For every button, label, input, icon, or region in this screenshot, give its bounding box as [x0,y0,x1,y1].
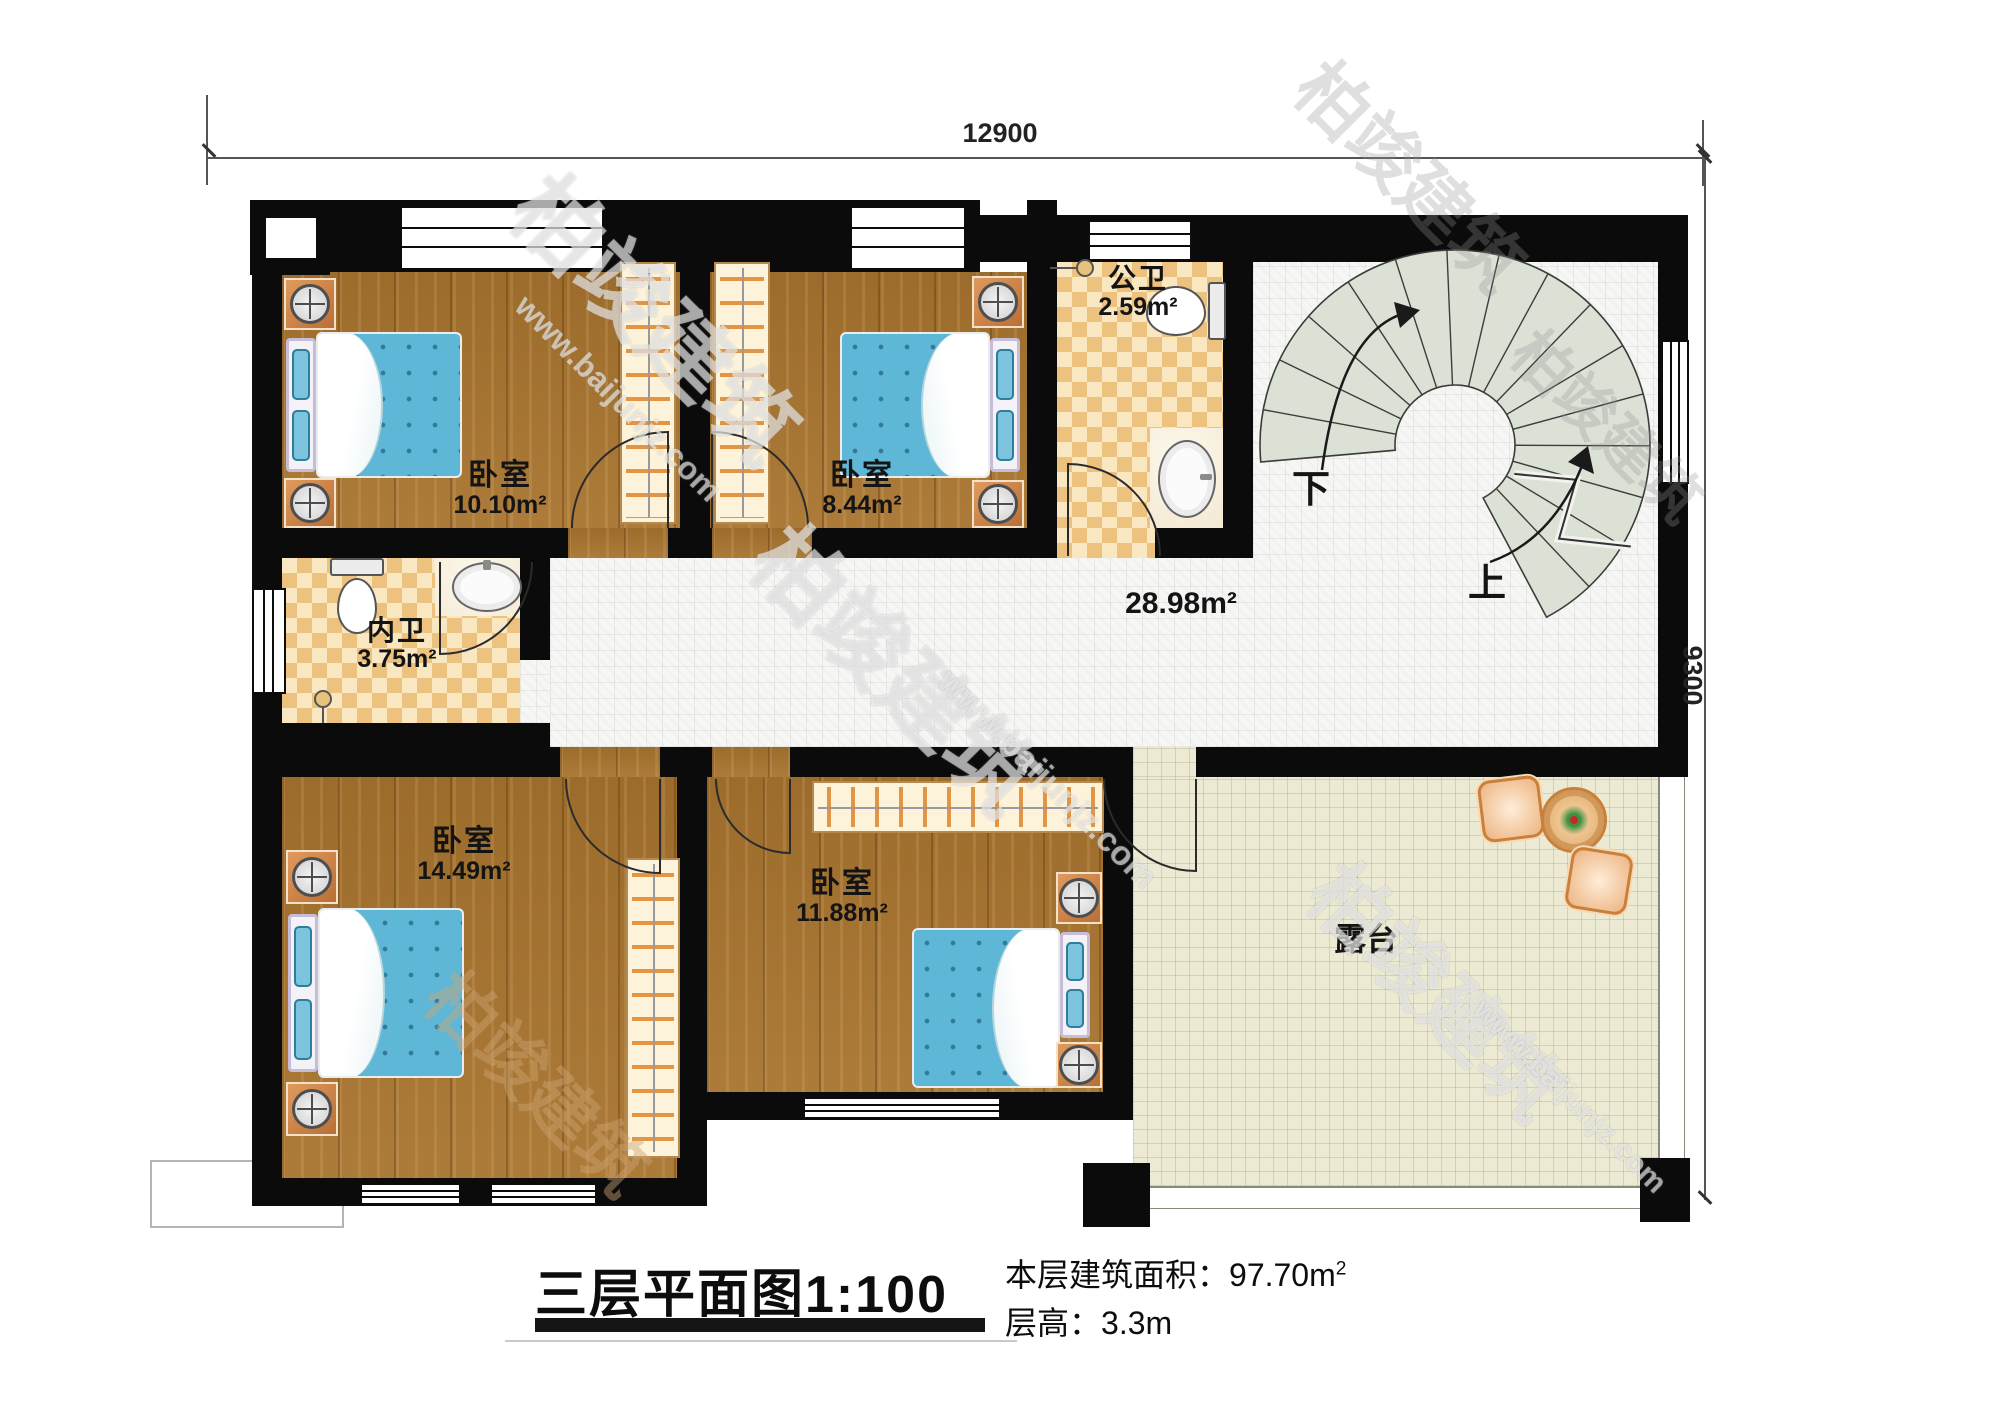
title-underline-thin [505,1340,1017,1342]
lamp-icon [292,857,332,897]
nightstand [286,850,338,904]
hanger-rail [626,268,670,518]
title-text: 三层平面图 [535,1266,805,1324]
lamp-icon [1059,1045,1099,1085]
wall-bedroom2-right [1027,200,1057,558]
pillow [996,349,1015,400]
floor-area-label: 本层建筑面积： [1005,1257,1229,1293]
nightstand [1056,872,1102,924]
wall-public-bath-bottom [1155,528,1253,558]
terrace-railing-bottom [1133,1186,1660,1188]
bed-mattress [316,332,462,478]
room-label-terrace: 露台 [1334,914,1398,960]
window-public-bath-top [1088,220,1192,261]
wardrobe [714,262,770,524]
extension-line-top-left [206,95,208,185]
room-name: 卧室 [430,460,570,492]
window-stair-hall-right [1661,340,1689,484]
nightstand [1056,1042,1102,1088]
terrace-railing-right-outer [1684,777,1685,1208]
bed-mattress [912,928,1060,1088]
lamp-icon [1059,878,1099,918]
window-inner-bath-left [252,588,286,694]
inner-bath-door-gap [520,660,550,723]
nightstand [286,1082,338,1136]
pillar-terrace-left [1083,1163,1150,1227]
floor-height-label: 层高： [1005,1305,1101,1341]
faucet-icon [1200,474,1212,480]
wall-public-bath-right [1223,215,1253,558]
nightstand [284,278,336,330]
bed-sheet [921,332,990,478]
lamp-icon [290,483,330,523]
room-area: 14.49m² [394,858,534,885]
window-bedroom3-bottom-a [360,1183,461,1205]
drawing-title: 三层平面图1:100 [535,1252,948,1327]
room-area: 10.10m² [430,492,570,519]
wall-bedroom1-2-divider [680,220,710,528]
lamp-icon [290,284,330,324]
stair-down-label: 下 [1292,458,1330,513]
pillow [292,349,311,400]
lamp-icon [292,1089,332,1129]
faucet-icon [483,560,491,570]
lamp-icon [978,282,1018,322]
title-scale: 1:100 [805,1266,948,1324]
window-bedroom2-top [850,206,966,270]
room-label-inner-bath: 内卫 3.75m² [337,616,457,673]
nightstand [284,478,336,528]
wall-mid-b [668,528,712,558]
room-name: 公卫 [1078,264,1198,294]
wall-corridor-b [660,747,712,777]
dim-tick [202,143,217,158]
room-area: 3.75m² [337,646,457,673]
window-bedroom1-top [400,206,604,270]
room-area: 28.98m² [1101,588,1261,620]
room-area: 8.44m² [792,492,932,519]
terrace-railing-right [1658,777,1660,1208]
floor-height-note: 层高：3.3m [1005,1298,1172,1344]
hanger-rail [632,864,674,1152]
window-bedroom3-bottom-b [490,1183,597,1205]
floor-area-sup: 2 [1336,1258,1347,1279]
wall-bedroom4-right [1103,747,1133,1120]
room-name: 卧室 [394,826,534,858]
bed-headboard [288,914,318,1072]
floor-plan-page: { "watermark": { "brand": "柏竣建筑", "url":… [0,0,2000,1413]
stair-up-label: 上 [1468,552,1506,607]
bed-headboard [286,338,316,472]
pillow [292,410,311,461]
room-label-bedroom2: 卧室 8.44m² [792,460,932,519]
pillow [996,410,1015,461]
toilet-tank [1208,282,1226,340]
wall-inner-bath-bottom [252,723,550,777]
bed-headboard [1060,932,1090,1038]
pillar-terrace-right [1640,1158,1690,1222]
wall-corridor-a [550,747,560,777]
room-label-hallway: 28.98m² [1101,588,1261,620]
wall-bedroom3-bottom [252,1178,707,1206]
shower-mixer-stem [322,708,324,723]
wall-mid-c [812,528,1057,558]
room-name: 卧室 [772,868,912,900]
wall-terrace-top [1196,747,1688,777]
public-bath-vestibule [1057,528,1155,558]
room-area: 11.88m² [772,900,912,927]
nightstand [972,480,1024,528]
lamp-icon [978,484,1018,524]
bed-sheet [318,908,385,1078]
pillow [294,926,313,987]
room-name: 内卫 [337,616,457,646]
pillow [1066,942,1085,981]
room-label-bedroom4: 卧室 11.88m² [772,868,912,927]
toilet-tank [330,558,384,576]
bedroom3-door-threshold [560,747,660,777]
hanger-rail [720,268,764,518]
chimney-flue [266,218,316,258]
bedroom4-door-threshold [712,747,790,777]
plant-icon [1559,805,1589,835]
hanger-rail [818,787,1098,827]
bed-mattress [840,332,990,478]
wall-top-right [965,215,1688,262]
wall-left [252,200,282,1206]
bed-headboard [990,338,1020,472]
wardrobe [812,781,1104,833]
room-label-public-bath: 公卫 2.59m² [1078,264,1198,321]
terrace-door-threshold [1133,747,1196,777]
room-name: 卧室 [792,460,932,492]
bed-sheet [316,332,383,478]
shower-mixer-icon [314,690,332,708]
shower-mixer-stem [1050,267,1078,269]
room-label-bedroom3: 卧室 14.49m² [394,826,534,885]
wardrobe [620,262,676,524]
floor-area-note: 本层建筑面积：97.70m2 [1005,1250,1346,1296]
bed-sheet [992,928,1060,1088]
pillow [294,999,313,1060]
floor-area-value: 97.70m [1229,1257,1336,1293]
bed-mattress [318,908,464,1078]
wall-corridor-c [790,747,1133,777]
dimension-line-top [208,157,1704,159]
bedroom1-door-threshold [568,528,668,558]
title-underline-thick [535,1318,985,1332]
dimension-width: 12900 [940,118,1060,149]
room-area: 2.59m² [1078,294,1198,321]
wall-mid-a [252,528,568,558]
terrace-table [1541,787,1607,853]
nightstand [972,276,1024,328]
terrace-chair [1564,846,1635,917]
terrace-railing-bottom-outer [1083,1208,1688,1209]
dimension-height: 9300 [1677,631,1708,721]
bedroom2-door-threshold [712,528,812,558]
terrace-chair [1476,774,1545,843]
window-bedroom4-bottom [803,1097,1001,1119]
wall-inner-bath-right [520,558,550,660]
pillow [1066,989,1085,1028]
wardrobe [626,858,680,1158]
room-label-bedroom1: 卧室 10.10m² [430,460,570,519]
floor-height-value: 3.3m [1101,1305,1172,1341]
